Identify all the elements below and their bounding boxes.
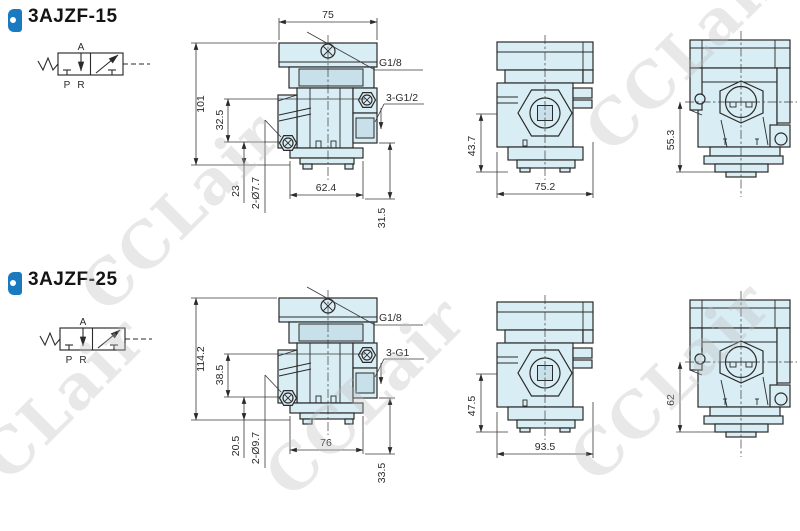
port-label-p: P — [66, 355, 73, 366]
front-view-3ajzf-25: G1/8 114.2 38.5 20.5 2-Ø9.7 76 33.5 3-G1 — [185, 260, 425, 500]
hex-bolt-icon — [359, 348, 376, 363]
hex-bolt-icon — [280, 391, 297, 406]
mount-hole — [695, 94, 705, 104]
dim-side-width: 75.2 — [535, 181, 556, 193]
model-title-3ajzf-15: 3AJZF-15 — [28, 6, 118, 28]
label-ports-side: 3-G1 — [386, 347, 410, 359]
dim-side-height: 47.5 — [466, 396, 478, 417]
port-label-r: R — [79, 355, 86, 366]
brand-icon — [8, 9, 22, 32]
dim-end-height: 62 — [665, 394, 677, 406]
dim-end-height: 55.3 — [665, 130, 677, 151]
end-view-3ajzf-15: 55.3 — [650, 25, 800, 215]
model-title-3ajzf-25: 3AJZF-25 — [28, 269, 118, 291]
label-port-top: G1/8 — [379, 57, 402, 69]
mount-hole — [775, 133, 787, 145]
end-view-3ajzf-25: 62 — [650, 285, 800, 475]
side-view-3ajzf-15: 43.7 75.2 — [450, 30, 610, 210]
dim-holes: 2-Ø7.7 — [250, 177, 262, 209]
valve-body — [497, 35, 593, 180]
dim-lower-height: 23 — [230, 185, 242, 197]
dim-side-width: 93.5 — [535, 441, 556, 453]
dim-inner-height: 32.5 — [214, 110, 226, 131]
valve-body — [278, 35, 377, 180]
hex-bolt-icon — [280, 136, 297, 151]
dim-height: 101 — [195, 95, 207, 113]
mount-hole — [775, 393, 787, 405]
front-view-3ajzf-15: 75 G1/8 101 32.5 23 2-Ø7.7 62.4 31.5 3-G… — [185, 5, 425, 245]
valve-body — [278, 290, 377, 435]
spring-icon — [40, 333, 60, 345]
valve-symbol: A P R — [38, 42, 150, 91]
dim-height: 114.2 — [195, 346, 207, 372]
dim-top-width: 75 — [322, 9, 334, 21]
valve-body — [497, 295, 593, 440]
side-view-3ajzf-25: 47.5 93.5 — [450, 290, 610, 470]
dim-bottom-width: 76 — [320, 437, 332, 449]
label-port-top: G1/8 — [379, 312, 402, 324]
hex-bolt-icon — [359, 93, 376, 108]
port-label-r: R — [77, 80, 84, 91]
mount-hole — [695, 354, 705, 364]
valve-symbol: A P R — [40, 317, 152, 366]
dim-bottom-width: 62.4 — [316, 182, 337, 194]
brand-icon — [8, 272, 22, 295]
dim-inner-height: 38.5 — [214, 365, 226, 386]
dim-lower-height: 20.5 — [230, 436, 242, 457]
label-ports-side: 3-G1/2 — [386, 92, 418, 104]
spring-icon — [38, 58, 58, 70]
dim-right-height: 33.5 — [376, 463, 388, 484]
port-label-p: P — [64, 80, 71, 91]
dim-side-height: 43.7 — [466, 136, 478, 157]
dim-holes: 2-Ø9.7 — [250, 432, 262, 464]
port-label-a: A — [80, 317, 87, 328]
port-label-a: A — [78, 42, 85, 53]
dim-right-height: 31.5 — [376, 208, 388, 229]
valve-schematic-3ajzf-15: A P R — [30, 40, 170, 100]
valve-schematic-3ajzf-25: A P R — [32, 315, 172, 375]
